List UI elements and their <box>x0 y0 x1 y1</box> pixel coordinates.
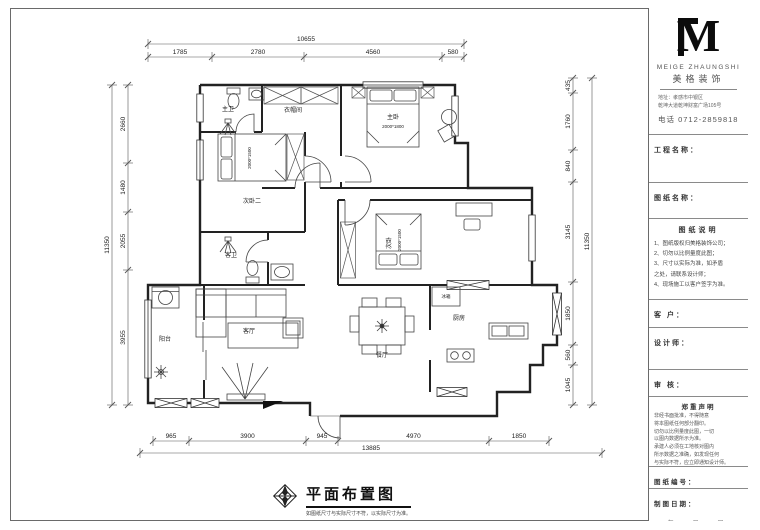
company-name-en: MEIGE ZHAUNGSHI <box>654 64 743 71</box>
room-label: 次卧二 <box>243 197 261 205</box>
statement-body: 非经书面批准，不得随意 将本图纸任何部分翻印。 切勿以比例量度此图，一切 以图内… <box>654 413 743 467</box>
dim-label: 1760 <box>565 114 572 129</box>
dim-label: 2660 <box>120 116 127 131</box>
room-label: 主卫 <box>222 105 234 113</box>
dim-label: 3900 <box>240 433 255 440</box>
dim-label: 1850 <box>565 306 572 321</box>
room-label: 厨房 <box>453 314 465 322</box>
designer-row: 设计师： <box>649 328 748 370</box>
dim-label: 1850 <box>512 433 527 440</box>
sheet-title-caption: 如图纸尺寸与实际尺寸不符，以实际尺寸为准。 <box>306 510 411 517</box>
dim-label: 945 <box>317 433 328 440</box>
dim-label: 11350 <box>104 236 111 254</box>
dim-label: 13885 <box>362 445 380 452</box>
drawing-name-row: 图纸名称： <box>649 183 748 219</box>
review-row: 审 核： <box>649 370 748 397</box>
room-label: 客厅 <box>243 327 255 335</box>
designer-label: 设计师： <box>654 340 690 347</box>
drawing-name-label: 图纸名称： <box>654 195 699 202</box>
drawing-notes-row: 图纸说明 1、图纸版权归美格装饰公司； 2、切勿以比例量度此图； 3、尺寸以实际… <box>649 219 748 300</box>
drawing-sheet: 1785278045605801065596539009454970185013… <box>0 0 760 530</box>
ornament-icon <box>272 483 298 509</box>
windows <box>145 82 562 408</box>
dim-label: 4560 <box>366 49 381 56</box>
notes-body: 1、图纸版权归美格装饰公司； 2、切勿以比例量度此图； 3、尺寸以实际为准，如矛… <box>654 239 743 290</box>
date-label: 制图日期： <box>654 501 697 508</box>
date-row: 制图日期： 年 月 日 <box>649 489 748 521</box>
sheet-title-text: 平面布置图 <box>306 483 411 508</box>
company-name-zh: 美格装饰 <box>660 72 737 90</box>
room-label: 次卧 <box>385 237 393 249</box>
room-label: 2000*1500 <box>247 147 252 169</box>
logo-arm <box>678 18 698 24</box>
company-phone: 电话 0712-2859818 <box>654 114 743 125</box>
project-name-row: 工程名称： <box>649 135 748 183</box>
drawing-number-row: 图纸编号： P-01 <box>649 467 748 489</box>
dim-label: 1045 <box>565 377 572 392</box>
room-label: 主卧 <box>387 113 399 121</box>
sheet-title: 平面布置图 如图纸尺寸与实际尺寸不符，以实际尺寸为准。 <box>272 483 442 517</box>
company-address: 地址：孝感市中银区 乾坤大道乾坤财富广场105号 <box>654 94 743 110</box>
room-label: 冰箱 <box>442 293 451 300</box>
title-block: M MEIGE ZHAUNGSHI 美格装饰 地址：孝感市中银区 乾坤大道乾坤财… <box>648 8 748 521</box>
room-label: 2000*1800 <box>382 124 404 129</box>
dim-label: 435 <box>565 80 572 91</box>
dim-label: 965 <box>166 433 177 440</box>
interior-walls <box>200 85 532 403</box>
dim-label: 11350 <box>584 232 591 250</box>
dim-label: 1785 <box>173 49 188 56</box>
dim-label: 2055 <box>120 233 127 248</box>
wardrobe-hatches <box>264 87 434 278</box>
room-label: 衣帽间 <box>284 106 302 114</box>
notes-title: 图纸说明 <box>654 225 743 235</box>
room-label: 2000*1500 <box>397 229 402 251</box>
client-row: 客 户： <box>649 300 748 328</box>
review-label: 审 核： <box>654 382 685 389</box>
dim-label: 840 <box>565 160 572 171</box>
floor-plan-area: 1785278045605801065596539009454970185013… <box>0 0 648 530</box>
drawing-number-label: 图纸编号： <box>654 479 697 486</box>
logo-block: M MEIGE ZHAUNGSHI 美格装饰 地址：孝感市中银区 乾坤大道乾坤财… <box>649 8 748 135</box>
client-label: 客 户： <box>654 312 685 319</box>
dim-label: 10655 <box>297 36 315 43</box>
date-placeholder: 年 月 日 <box>654 517 743 521</box>
project-name-label: 工程名称： <box>654 147 699 154</box>
company-logo: M <box>654 10 743 62</box>
statement-row: 郑重声明 非经书面批准，不得随意 将本图纸任何部分翻印。 切勿以比例量度此图，一… <box>649 397 748 467</box>
dim-label: 1480 <box>120 180 127 195</box>
exterior-walls <box>148 85 557 416</box>
floor-plan-svg: 1785278045605801065596539009454970185013… <box>0 0 648 530</box>
statement-title: 郑重声明 <box>654 401 743 411</box>
room-label: 阳台 <box>159 335 171 343</box>
dim-label: 2780 <box>251 49 266 56</box>
room-label: 餐厅 <box>376 351 388 359</box>
dim-label: 3145 <box>565 224 572 239</box>
dim-label: 3955 <box>120 330 127 345</box>
dim-label: 560 <box>565 349 572 360</box>
dim-label: 4970 <box>406 433 421 440</box>
dim-label: 580 <box>448 49 459 56</box>
room-label: 客卫 <box>225 251 237 259</box>
